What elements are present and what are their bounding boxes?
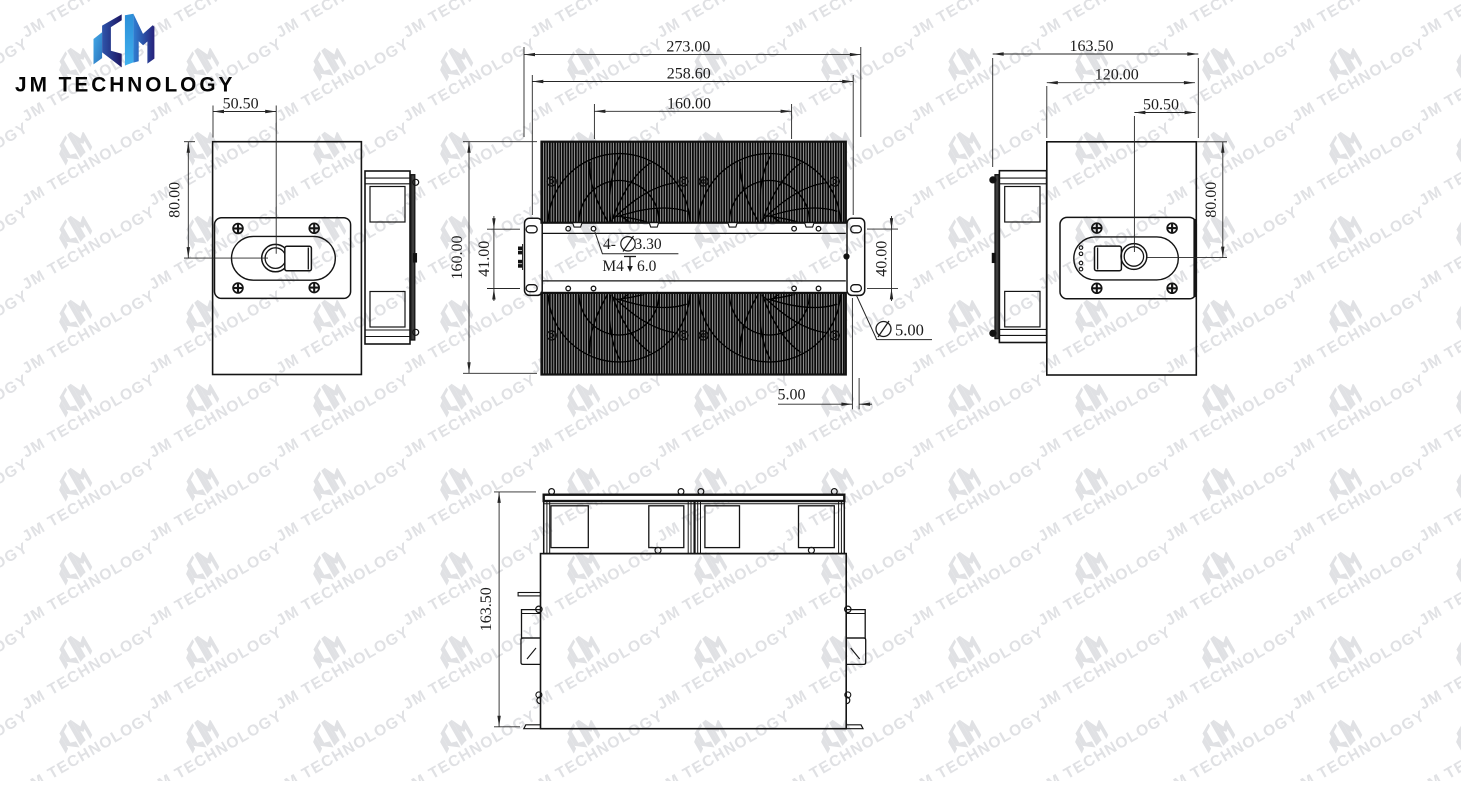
svg-text:50.50: 50.50 [223,96,259,113]
svg-text:160.00: 160.00 [667,95,711,112]
svg-text:41.00: 41.00 [476,241,493,277]
svg-text:6.0: 6.0 [637,258,657,275]
svg-text:5.00: 5.00 [778,387,806,404]
svg-text:160.00: 160.00 [449,236,466,280]
svg-text:4-: 4- [603,236,616,253]
svg-text:163.50: 163.50 [1070,38,1114,55]
svg-text:80.00: 80.00 [167,182,184,218]
svg-text:258.60: 258.60 [667,66,711,83]
svg-text:M4: M4 [602,258,624,275]
svg-text:163.50: 163.50 [478,587,495,631]
svg-text:40.00: 40.00 [874,241,891,277]
svg-text:5.00: 5.00 [895,321,924,340]
svg-text:3.30: 3.30 [635,236,662,253]
svg-text:273.00: 273.00 [666,39,710,56]
svg-text:50.50: 50.50 [1143,97,1179,114]
svg-text:JM TECHNOLOGY: JM TECHNOLOGY [15,74,235,97]
svg-text:80.00: 80.00 [1203,182,1220,218]
svg-text:120.00: 120.00 [1095,67,1139,84]
